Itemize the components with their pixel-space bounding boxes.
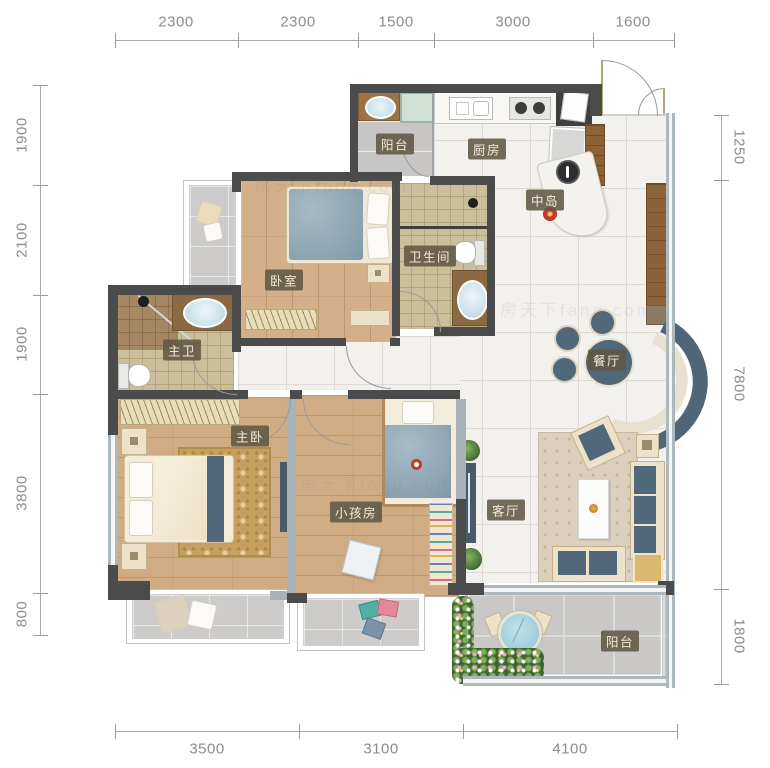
table-line — [513, 618, 525, 642]
dim-value: 3500 — [189, 741, 224, 758]
wall — [350, 84, 358, 182]
watermark: 房天下fang.com — [500, 296, 654, 321]
nightstand — [367, 264, 390, 283]
dim-value: 2100 — [14, 222, 31, 257]
dim-value: 1600 — [615, 14, 650, 31]
dim-tick — [593, 33, 594, 48]
dim-value: 2300 — [158, 14, 193, 31]
table-decor — [589, 504, 598, 513]
dim-tick — [299, 724, 300, 739]
room-label-kids-room: 小孩房 — [330, 502, 382, 523]
nightstand — [121, 428, 147, 455]
dim-tick — [714, 589, 729, 590]
dim-value: 1900 — [14, 326, 31, 361]
shower-partition — [398, 226, 489, 229]
sofa-cushion — [634, 526, 656, 554]
room-label-master-bedroom: 主卧 — [231, 426, 269, 447]
shower-head-icon — [138, 296, 149, 307]
window-wall — [463, 676, 666, 686]
room-label-island: 中岛 — [526, 190, 564, 211]
dim-line — [115, 40, 674, 41]
side-table-top — [642, 440, 652, 450]
dim-tick — [434, 33, 435, 48]
room-label-dining-room: 餐厅 — [588, 350, 626, 371]
dim-tick — [33, 593, 48, 594]
tv-master — [280, 462, 287, 532]
bench — [350, 310, 390, 326]
window-wall — [108, 435, 118, 565]
bed-blanket — [289, 189, 363, 260]
sofa — [630, 461, 665, 560]
bed-pillow — [129, 462, 153, 498]
master-bed — [124, 455, 234, 543]
dim-tick — [714, 115, 729, 116]
coffee-table — [578, 479, 609, 539]
floorplan-canvas: 2300 2300 1500 3000 1600 3500 3100 4100 … — [0, 0, 770, 768]
side-table — [636, 434, 659, 458]
dim-tick — [714, 180, 729, 181]
dim-tick — [238, 33, 239, 48]
burner — [515, 102, 527, 114]
dim-value: 4100 — [552, 741, 587, 758]
bar-stool-icon — [556, 160, 580, 184]
vanity-counter — [172, 293, 236, 331]
dim-tick — [33, 635, 48, 636]
wall — [590, 84, 602, 116]
sink-bowl — [473, 101, 489, 116]
dim-line — [721, 115, 722, 684]
bed-pillow — [129, 500, 153, 536]
dim-tick — [115, 33, 116, 48]
partition-wall — [287, 399, 296, 593]
end-table — [633, 553, 663, 583]
sink-bowl — [456, 102, 469, 115]
bay-window-kids — [297, 593, 425, 651]
toilet-icon — [128, 364, 151, 387]
bay-window-master — [126, 589, 290, 644]
sofa-cushion — [558, 551, 586, 575]
room-label-bedroom: 卧室 — [265, 270, 303, 291]
nightstand-knob — [130, 437, 138, 445]
dim-tick — [677, 724, 678, 739]
wall — [456, 499, 466, 595]
room-label-master-bath: 主卫 — [163, 340, 201, 361]
dim-tick — [463, 724, 464, 739]
sofa-bench — [552, 546, 626, 582]
wardrobe — [245, 309, 317, 330]
toy — [411, 459, 422, 470]
dim-tick — [33, 85, 48, 86]
dim-tick — [33, 185, 48, 186]
dim-value: 3000 — [495, 14, 530, 31]
armchair-cushion — [578, 424, 615, 461]
wall — [430, 176, 494, 185]
fork-glyph — [566, 166, 569, 178]
dim-line — [40, 85, 41, 635]
wall — [232, 172, 241, 192]
dim-value: 800 — [14, 601, 31, 628]
bed-pillow — [366, 226, 390, 259]
wall — [108, 285, 240, 295]
dining-tall-cabinet — [646, 183, 668, 307]
washing-machine-icon — [400, 92, 434, 123]
dim-value: 3800 — [14, 475, 31, 510]
stove-icon — [509, 97, 551, 120]
room-label-balcony-bottom: 阳台 — [601, 631, 639, 652]
dining-stool — [554, 325, 581, 352]
wall — [392, 176, 400, 336]
vanity-counter — [452, 270, 490, 326]
wall — [487, 176, 495, 336]
sofa-cushion — [634, 496, 656, 524]
window-wall — [666, 113, 675, 688]
fridge-icon — [560, 90, 589, 122]
bed-runner — [207, 456, 224, 542]
wall — [238, 338, 346, 346]
room-label-living-room: 客厅 — [487, 500, 525, 521]
wall — [434, 327, 495, 336]
washbasin-icon — [183, 298, 227, 328]
wall — [390, 338, 400, 346]
dim-value: 3100 — [363, 741, 398, 758]
nightstand — [121, 543, 147, 570]
dim-value: 7800 — [731, 366, 748, 401]
room-label-bathroom: 卫生间 — [404, 246, 456, 267]
room-label-balcony-top: 阳台 — [376, 134, 414, 155]
dim-value: 1500 — [378, 14, 413, 31]
wall — [348, 390, 460, 399]
wall — [240, 390, 248, 399]
toy-book — [377, 598, 399, 617]
toilet-icon — [453, 241, 476, 264]
washbasin-icon — [365, 96, 396, 119]
wall — [108, 581, 150, 600]
dim-value: 1250 — [731, 129, 748, 164]
wall — [448, 583, 484, 595]
sofa-cushion — [589, 551, 617, 575]
laundry-counter — [358, 92, 400, 121]
washbasin-icon — [457, 280, 488, 320]
bookshelf — [429, 503, 453, 586]
wall — [290, 390, 302, 399]
dim-tick — [674, 33, 675, 48]
dim-tick — [714, 684, 729, 685]
cushion — [187, 600, 218, 631]
dim-tick — [33, 394, 48, 395]
shower-head-icon — [468, 198, 478, 208]
sink-icon — [449, 97, 493, 120]
dim-line — [115, 731, 678, 732]
burner — [533, 102, 545, 114]
window-wall — [484, 585, 666, 595]
double-bed — [286, 186, 394, 264]
wall — [350, 84, 602, 93]
dim-tick — [358, 33, 359, 48]
dim-tick — [33, 295, 48, 296]
sofa-cushion — [634, 466, 656, 494]
room-label-kitchen: 厨房 — [468, 139, 506, 160]
bed-duvet — [155, 458, 209, 540]
cushion — [202, 221, 223, 242]
nightstand-knob — [375, 270, 381, 276]
entry-door-leaf-small — [663, 88, 665, 114]
wall — [232, 285, 241, 352]
bed-pillow — [366, 192, 390, 225]
dim-tick — [115, 724, 116, 739]
dining-stool — [551, 356, 578, 383]
kitchen-counter — [434, 92, 562, 124]
watermark: 房天下fang.com — [255, 172, 409, 197]
dim-value: 2300 — [280, 14, 315, 31]
dim-value: 1800 — [731, 618, 748, 653]
bay-window-bedroom — [183, 180, 242, 300]
watermark: 房天下fang.com — [300, 470, 454, 495]
wardrobe — [120, 399, 240, 425]
nightstand-knob — [130, 552, 138, 560]
partition-wall — [456, 399, 466, 499]
tv-screen-line — [468, 473, 470, 533]
wall — [287, 593, 307, 603]
bed-pillow — [402, 401, 434, 424]
dim-value: 1900 — [14, 117, 31, 152]
